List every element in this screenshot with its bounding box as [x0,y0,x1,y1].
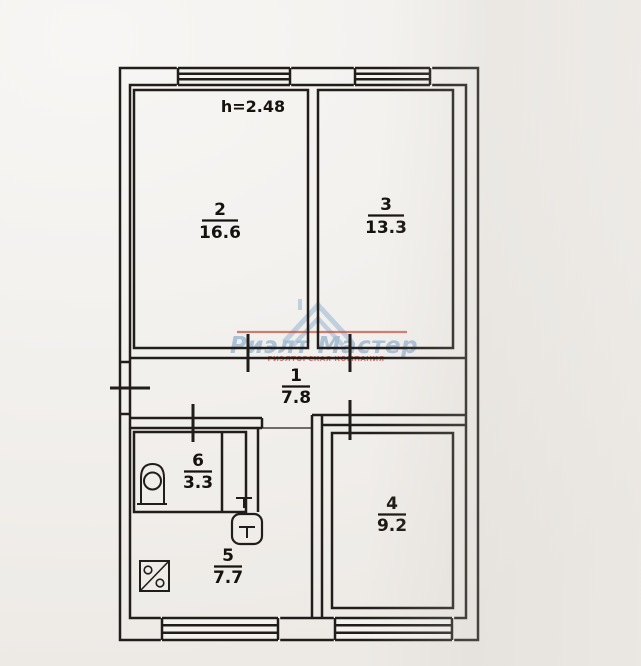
room-5-area: 7.7 [213,568,243,588]
floor-plan-canvas: Риэлт Мастер РИЭЛТОРСКАЯ КОМПАНИЯ [0,0,641,666]
room-6-label: 6 3.3 [183,451,213,493]
scanned-floor-plan: Риэлт Мастер РИЭЛТОРСКАЯ КОМПАНИЯ [0,0,641,666]
room-2-label: 2 16.6 [199,200,241,243]
room-3-area: 13.3 [365,218,407,238]
wc-tee-icon [236,498,252,508]
watermark: Риэлт Мастер РИЭЛТОРСКАЯ КОМПАНИЯ [230,299,418,363]
room-5-label: 5 7.7 [213,546,243,588]
room-4-area: 9.2 [377,516,407,536]
room-3-number: 3 [380,195,392,215]
room-6-number: 6 [192,451,204,471]
room-1-label: 1 7.8 [281,366,311,408]
room-3-label: 3 13.3 [365,195,407,238]
window-top-left-icon [177,67,291,87]
bath-boiler-icon [137,464,167,504]
toilet-icon [232,514,262,544]
room-4-label: 4 9.2 [377,494,407,536]
room-2-number: 2 [214,200,226,220]
ceiling-height-label: h=2.48 [221,97,285,116]
room-2-area: 16.6 [199,223,241,243]
kitchen-sink-icon [140,561,169,591]
room-5-number: 5 [222,546,234,566]
room-4-number: 4 [386,494,398,514]
room-1-number: 1 [290,366,302,386]
room-1-area: 7.8 [281,388,311,408]
window-bottom-left-icon [161,617,280,642]
window-top-right-icon [354,67,432,87]
window-bottom-right-icon [334,617,454,642]
room-6-area: 3.3 [183,473,213,493]
